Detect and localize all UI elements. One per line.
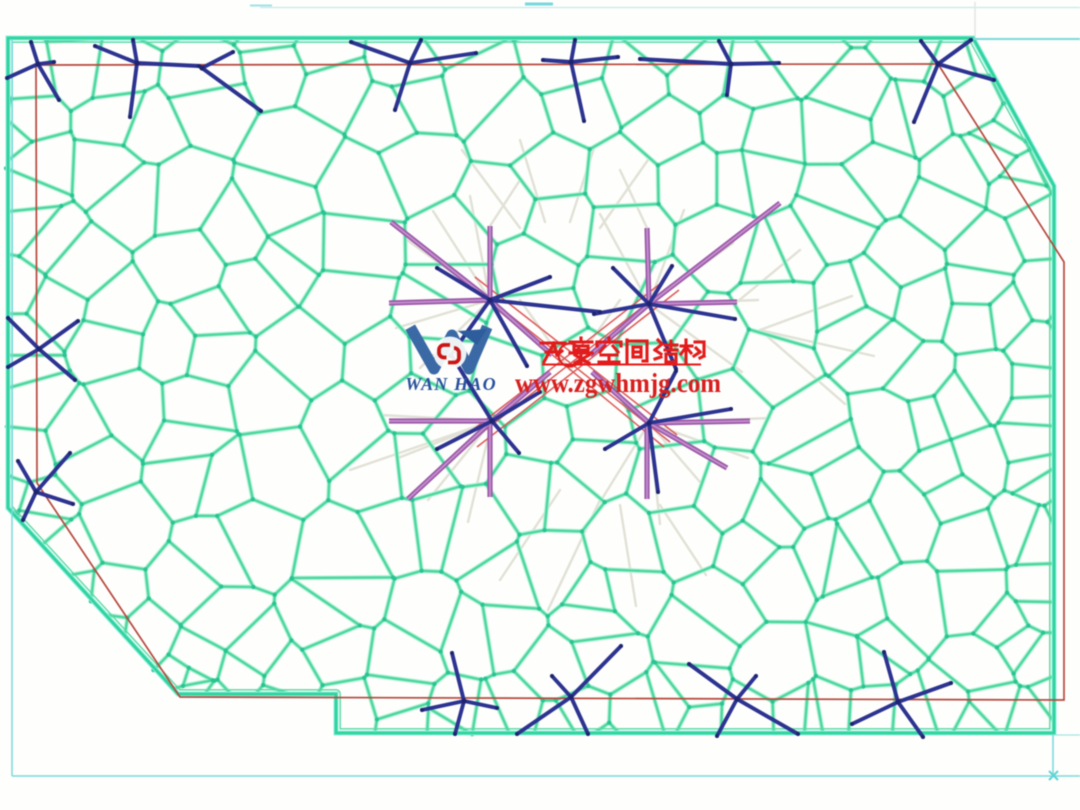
svg-text:WAN HAO: WAN HAO [405, 374, 497, 394]
svg-text:www.zgwhmjg.com: www.zgwhmjg.com [515, 368, 721, 398]
